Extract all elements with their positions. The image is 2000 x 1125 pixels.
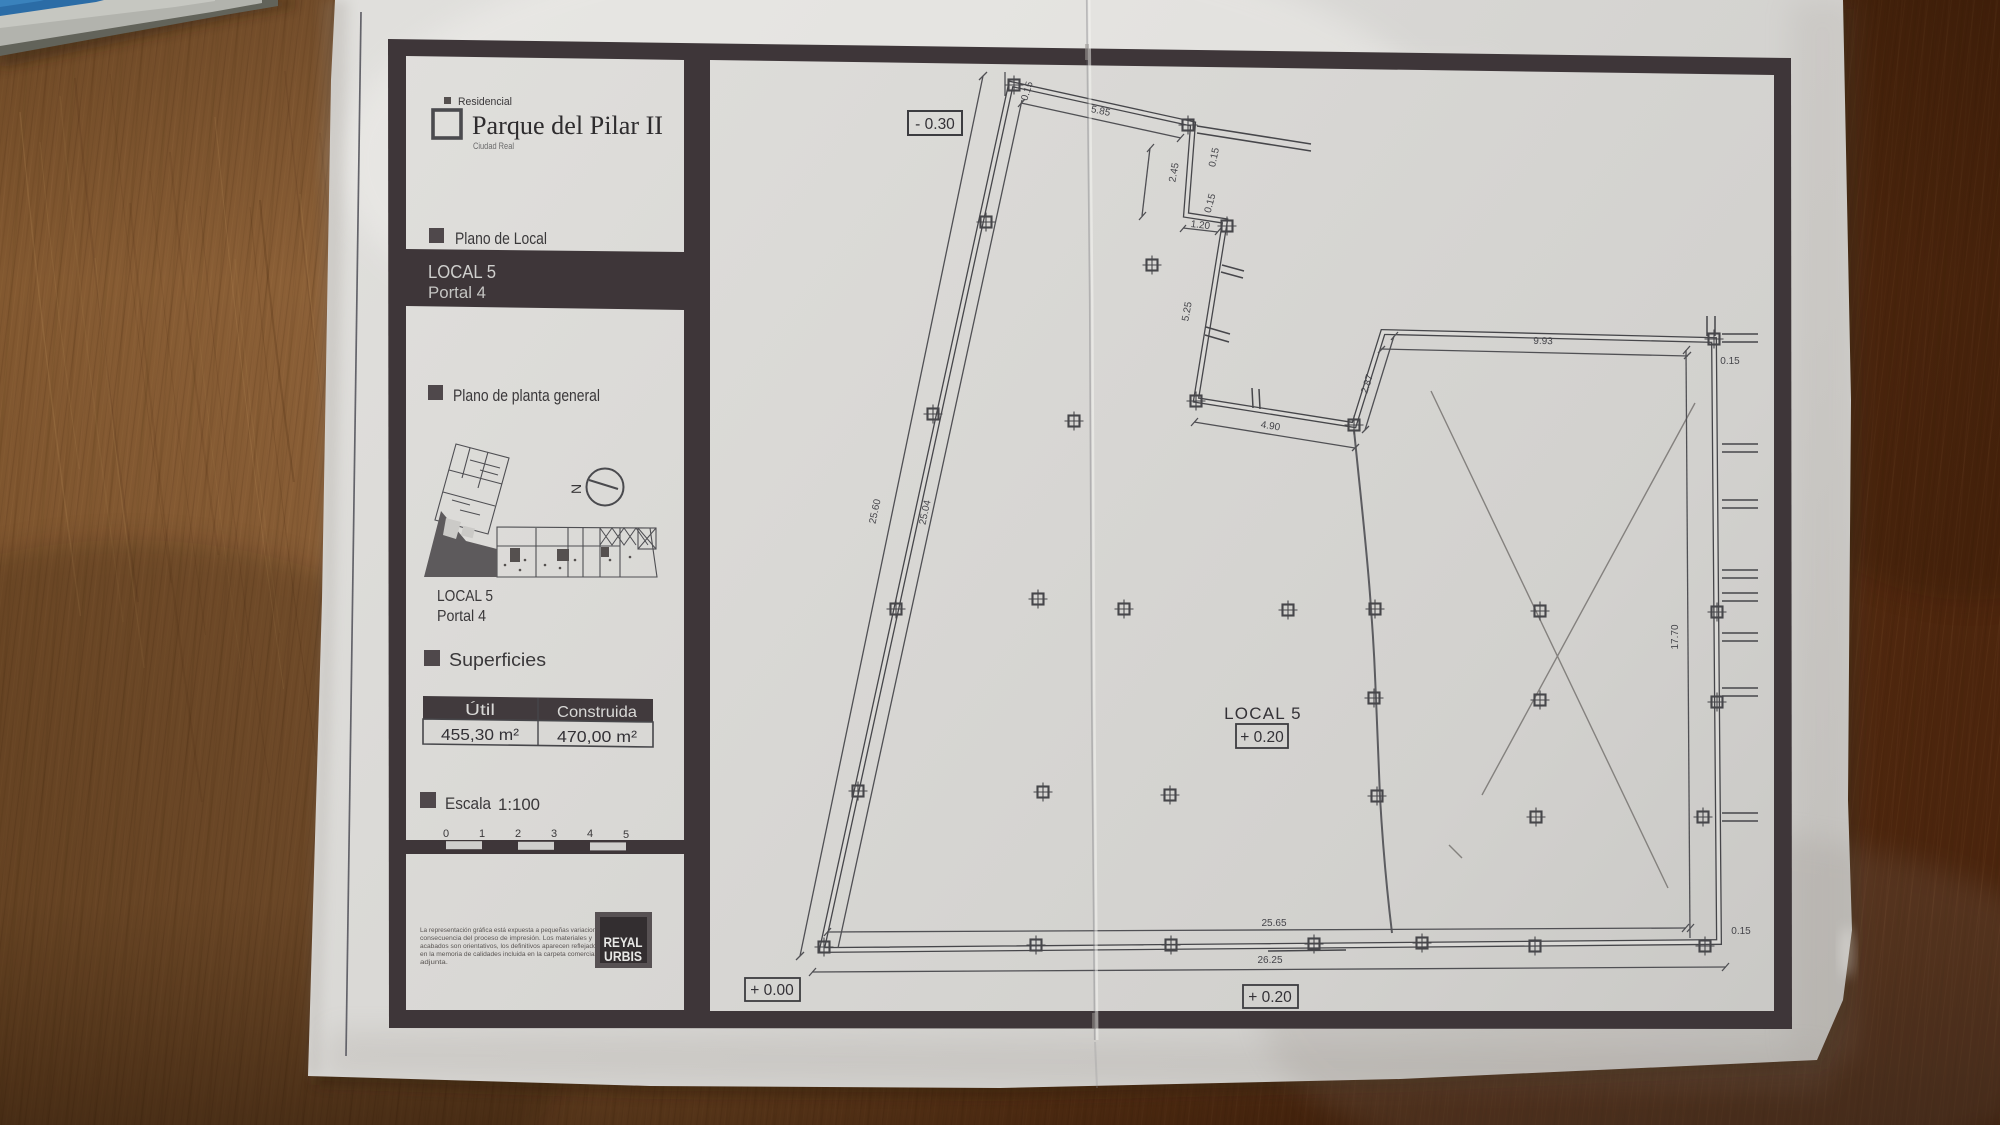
svg-text:1: 1	[479, 828, 485, 840]
svg-text:Residencial: Residencial	[458, 96, 512, 108]
svg-text:URBIS: URBIS	[604, 949, 642, 964]
svg-text:REYAL: REYAL	[604, 935, 643, 950]
svg-text:LOCAL 5: LOCAL 5	[428, 262, 496, 282]
svg-text:+ 0.20: + 0.20	[1240, 729, 1284, 746]
svg-text:0.15: 0.15	[1731, 926, 1751, 937]
svg-text:0: 0	[443, 828, 449, 840]
svg-text:26.25: 26.25	[1257, 955, 1282, 966]
svg-text:en la memoria de calidades inc: en la memoria de calidades incluida en l…	[420, 951, 596, 958]
svg-text:+ 0.00: + 0.00	[750, 982, 794, 999]
svg-text:Útil: Útil	[465, 700, 495, 719]
svg-text:- 0.30: - 0.30	[915, 116, 955, 133]
svg-text:Portal 4: Portal 4	[437, 608, 486, 625]
svg-text:0.15: 0.15	[1720, 356, 1740, 367]
svg-text:Plano de Local: Plano de Local	[455, 229, 547, 248]
svg-text:Plano de planta general: Plano de planta general	[453, 386, 600, 405]
svg-text:Parque del Pilar II: Parque del Pilar II	[472, 111, 663, 140]
svg-text:adjunta.: adjunta.	[420, 959, 448, 966]
svg-text:LOCAL 5: LOCAL 5	[437, 588, 493, 605]
svg-text:4: 4	[587, 828, 593, 840]
svg-text:+ 0.20: + 0.20	[1248, 989, 1292, 1006]
svg-text:LOCAL 5: LOCAL 5	[1224, 704, 1302, 723]
svg-text:consecuencia del proceso de im: consecuencia del proceso de impresión. L…	[420, 935, 593, 942]
svg-text:25.65: 25.65	[1261, 918, 1286, 929]
svg-text:Superficies: Superficies	[449, 650, 546, 670]
svg-text:Construida: Construida	[557, 704, 637, 721]
svg-text:2: 2	[515, 828, 521, 840]
svg-text:Ciudad Real: Ciudad Real	[473, 141, 514, 152]
svg-text:N: N	[568, 484, 584, 494]
svg-text:3: 3	[551, 828, 557, 840]
svg-text:acabados son orientativos, los: acabados son orientativos, los definitiv…	[420, 943, 600, 950]
svg-text:455,30 m²: 455,30 m²	[441, 727, 520, 744]
svg-text:9.93: 9.93	[1533, 336, 1553, 347]
svg-text:La representación gráfica está: La representación gráfica está expuesta …	[420, 927, 603, 934]
svg-text:470,00 m²: 470,00 m²	[557, 729, 638, 746]
svg-text:17.70: 17.70	[1670, 624, 1681, 649]
svg-text:5: 5	[623, 829, 629, 841]
svg-text:Portal 4: Portal 4	[428, 283, 486, 302]
svg-text:1:100: 1:100	[498, 795, 540, 814]
svg-text:Escala: Escala	[445, 794, 491, 813]
